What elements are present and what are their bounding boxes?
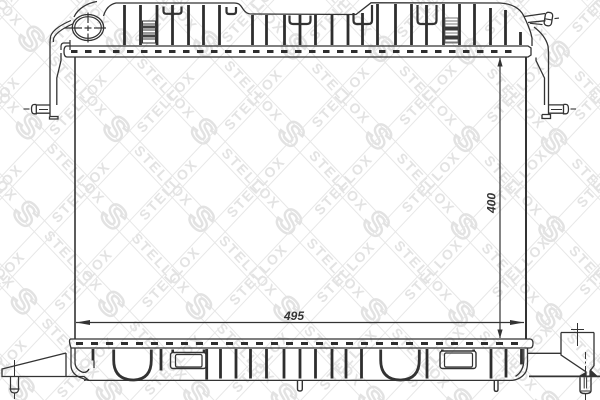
svg-text:495: 495 xyxy=(283,309,304,323)
svg-text:400: 400 xyxy=(485,193,499,214)
svg-text:STELLOX: STELLOX xyxy=(568,0,600,36)
